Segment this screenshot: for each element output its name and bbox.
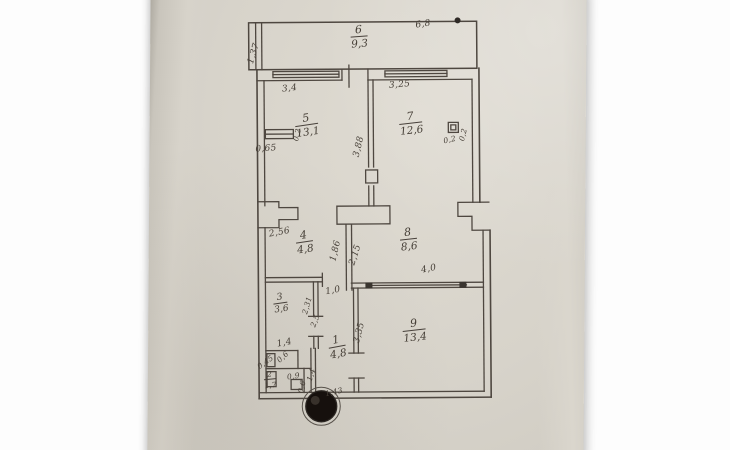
room-label-9: 9 13,4 <box>401 316 427 345</box>
dimension-label: 3,4 <box>281 83 297 95</box>
dimension-label: 3,25 <box>389 79 411 91</box>
ink-blot <box>455 17 461 23</box>
room-area: 13,4 <box>403 329 428 345</box>
room-area: 12,6 <box>399 122 424 138</box>
duct-room7 <box>448 122 458 132</box>
pier-right <box>458 202 489 230</box>
room-label-7: 7 12,6 <box>398 109 424 138</box>
room-number: 6 <box>350 23 368 37</box>
room-label-6: 6 9,3 <box>350 23 369 51</box>
room-area: 3,6 <box>274 303 290 317</box>
floor-plan-drawing <box>0 0 730 450</box>
room-area: 9,3 <box>351 36 369 51</box>
floor-plan: 6 9,3 5 13,1 7 12,6 4 4,8 8 8,6 3 3,6 1 … <box>0 0 730 450</box>
room-area: 8,6 <box>400 239 418 254</box>
pier-left <box>258 201 298 227</box>
pier-center <box>337 206 390 224</box>
room-label-8: 8 8,6 <box>399 226 419 254</box>
room-area: 1,7 <box>264 379 277 390</box>
door-room5-7 <box>366 170 378 183</box>
room-area: 4,8 <box>296 241 315 257</box>
scanned-floor-plan-photo: 6 9,3 5 13,1 7 12,6 4 4,8 8 8,6 3 3,6 1 … <box>0 0 730 450</box>
dimension-label: 0,65 <box>255 143 277 155</box>
room-label-2: 2 1,7 <box>263 370 277 390</box>
